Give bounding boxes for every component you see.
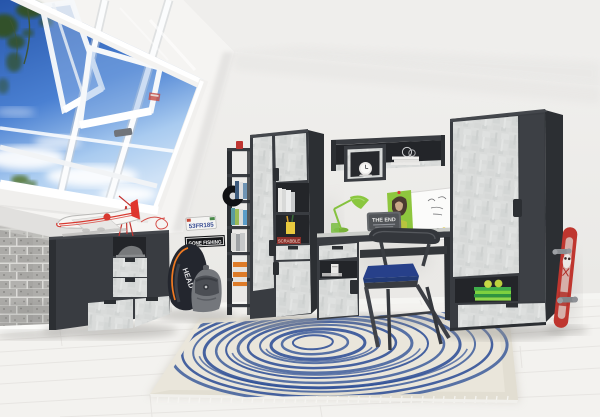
svg-text:SCRABBLE: SCRABBLE	[278, 239, 301, 244]
svg-text:THE END: THE END	[372, 217, 396, 224]
